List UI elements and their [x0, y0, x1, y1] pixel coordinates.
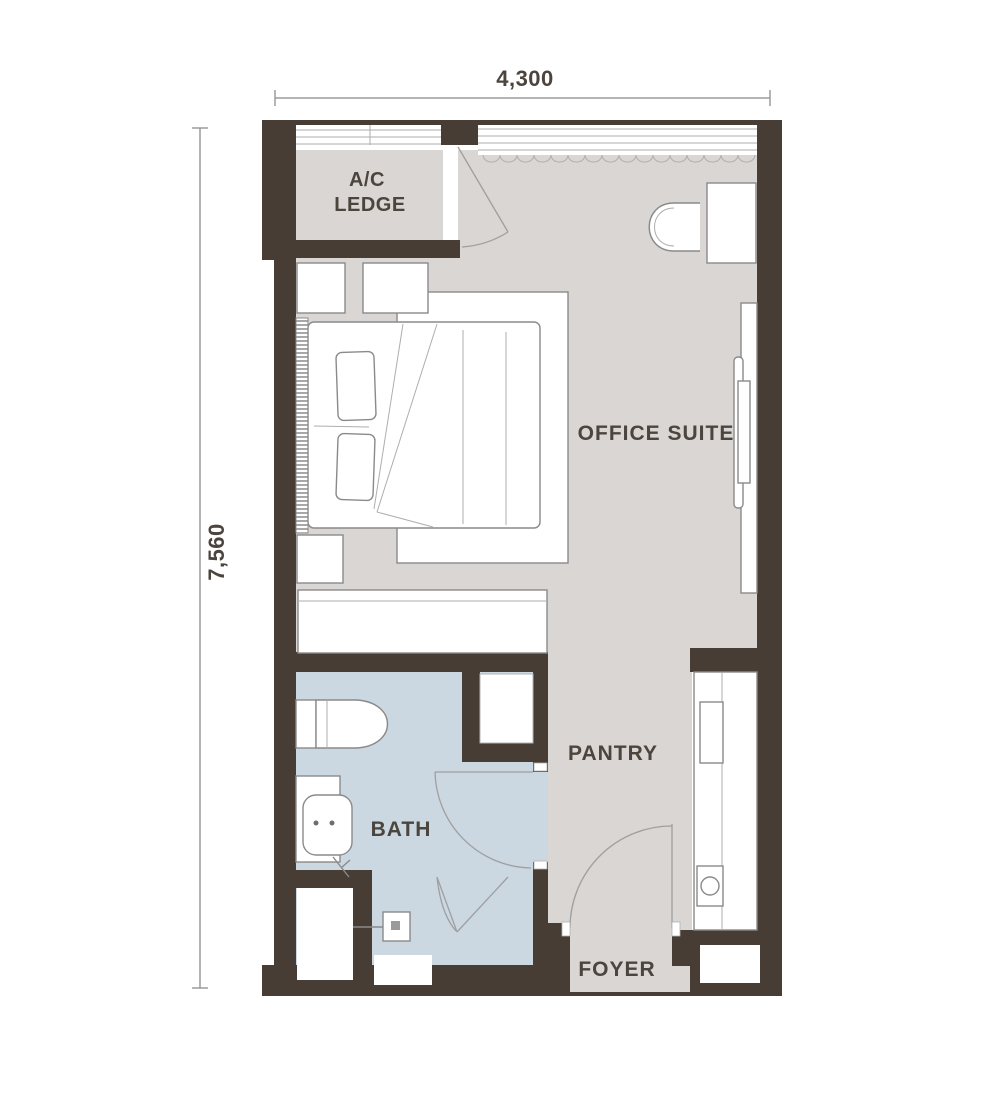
- pillow-bottom: [336, 433, 375, 500]
- sink-tap-dot-1: [314, 821, 319, 826]
- shaft-niche-bottom-mid: [374, 955, 432, 985]
- kitchen-counter: [694, 672, 757, 930]
- toilet-tank: [296, 700, 316, 748]
- sink-tap-dot-2: [330, 821, 335, 826]
- room-label-bath: BATH: [371, 818, 432, 841]
- ac-ledge-floor: [296, 145, 443, 240]
- dimension-top-label: 4,300: [496, 66, 554, 91]
- room-label-office-suite: OFFICE SUITE: [578, 422, 735, 445]
- room-label-foyer: FOYER: [578, 958, 655, 981]
- tv-bracket: [738, 381, 750, 483]
- counter-cabinet: [700, 702, 723, 763]
- pantry-floor: [548, 672, 692, 930]
- closet-niche: [480, 674, 533, 743]
- floor-plan-svg: 4,300 7,560: [0, 0, 1000, 1100]
- floor-plan-page: 4,300 7,560: [0, 0, 1000, 1100]
- bath-door-opening-floor: [533, 772, 548, 862]
- bed-headboard: [296, 318, 308, 533]
- bedroom-furniture: [296, 263, 568, 653]
- bath-door-jamb-bottom: [534, 861, 547, 869]
- desk: [707, 183, 756, 263]
- shower-head-core: [391, 921, 400, 930]
- shaft-niche-bottom-left: [297, 888, 353, 980]
- nightstand-top: [297, 263, 345, 313]
- desk-chair: [649, 203, 700, 251]
- nightstand-bottom: [297, 535, 343, 583]
- pillow-top: [336, 351, 376, 420]
- room-label-pantry: PANTRY: [568, 742, 658, 765]
- shaft-niche-bottom-right: [700, 945, 760, 983]
- wardrobe: [298, 590, 547, 653]
- entry-door-jamb-left: [562, 922, 570, 936]
- side-table: [363, 263, 428, 313]
- dimension-left-label: 7,560: [204, 523, 229, 581]
- sink-basin: [303, 795, 352, 855]
- bath-door-jamb-top: [534, 763, 547, 771]
- entry-door-jamb-right: [672, 922, 680, 936]
